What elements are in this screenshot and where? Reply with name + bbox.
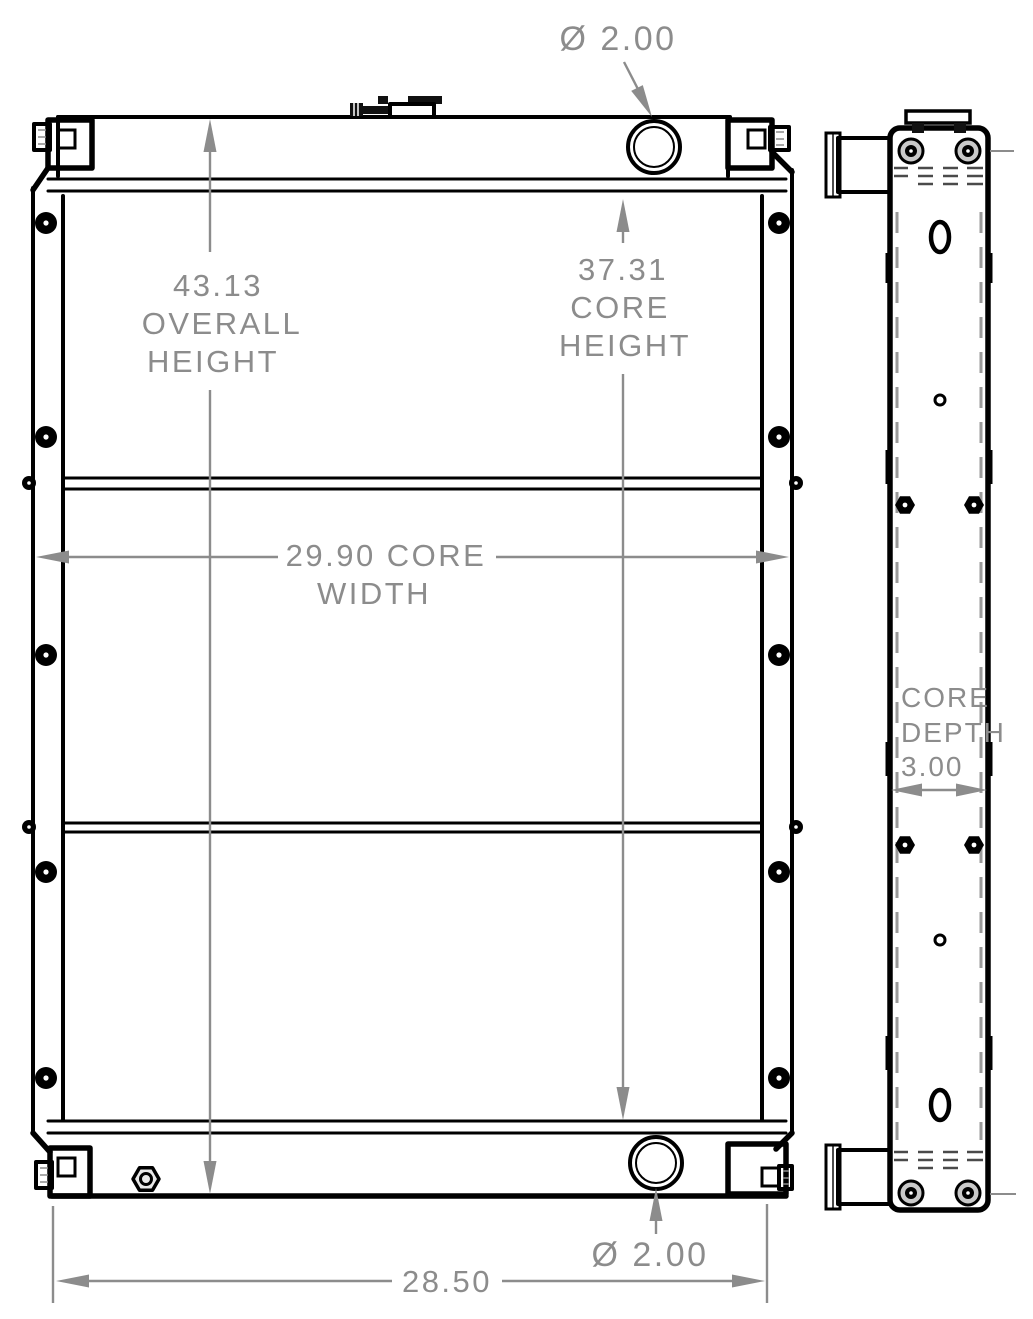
side-view — [826, 111, 1016, 1210]
dim-top-port: Ø 2.00 — [559, 20, 676, 117]
core-width-line1: 29.90 CORE — [286, 538, 487, 573]
bottom-right-bracket — [728, 1133, 792, 1194]
overall-height-label2: HEIGHT — [147, 344, 279, 379]
fin-hatch-marks — [894, 168, 983, 1168]
filler-neck-circle — [628, 121, 680, 173]
overall-height-label1: OVERALL — [142, 306, 303, 341]
side-body — [890, 128, 988, 1210]
top-port-diameter-text: Ø 2.00 — [559, 20, 676, 58]
top-right-bracket — [728, 120, 792, 172]
side-inlet-pipe — [826, 133, 890, 197]
dim-core-height: 37.31 CORE HEIGHT — [559, 199, 691, 1120]
side-outlet-pipe — [826, 1145, 890, 1209]
core-height-value: 37.31 — [578, 252, 668, 287]
dim-core-width: 29.90 CORE WIDTH — [36, 538, 789, 611]
core-depth-label1: CORE — [901, 682, 990, 713]
front-view — [22, 96, 803, 1196]
side-slots-and-holes — [895, 222, 984, 1120]
side-washer-bolts — [899, 139, 980, 1205]
drawing-canvas: 43.13 OVERALL HEIGHT 37.31 CORE HEIGHT 2… — [0, 0, 1033, 1319]
dim-bottom-port: Ø 2.00 — [591, 1188, 708, 1274]
top-tank — [48, 117, 786, 191]
overall-height-value: 43.13 — [173, 268, 263, 303]
top-mount-bracket — [350, 96, 442, 117]
mounting-width-value: 28.50 — [402, 1264, 492, 1299]
side-extension-stubs — [990, 151, 1016, 1194]
core-depth-value: 3.00 — [901, 751, 964, 782]
core-width-line2: WIDTH — [317, 576, 431, 611]
bottom-port-diameter-text: Ø 2.00 — [591, 1236, 708, 1274]
drain-plug-nut — [133, 1168, 159, 1191]
dim-overall-height: 43.13 OVERALL HEIGHT — [142, 119, 303, 1194]
side-dashed-edges — [886, 212, 993, 1140]
core-height-label2: HEIGHT — [559, 328, 691, 363]
core-depth-label2: DEPTH — [901, 717, 1006, 748]
radiator-technical-drawing: 43.13 OVERALL HEIGHT 37.31 CORE HEIGHT 2… — [0, 0, 1033, 1319]
bottom-left-bracket — [33, 1133, 90, 1196]
core-height-label1: CORE — [570, 290, 670, 325]
outlet-circle — [630, 1137, 682, 1189]
core-band-lines — [63, 478, 762, 832]
